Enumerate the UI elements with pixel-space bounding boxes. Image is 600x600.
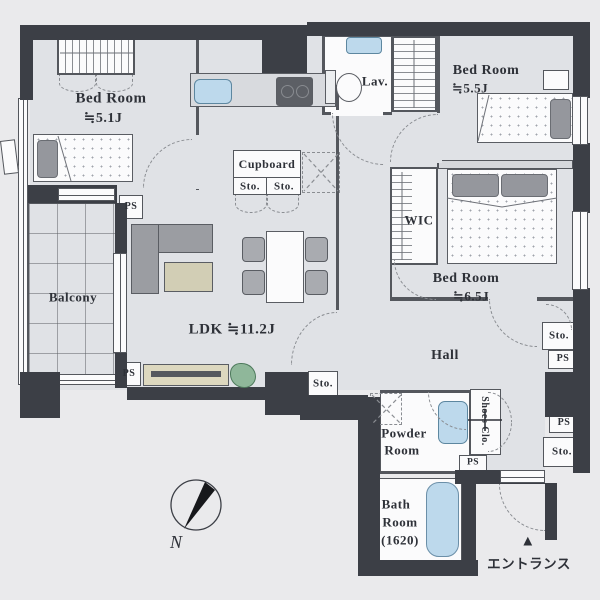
compass-north-label: N: [169, 532, 183, 552]
pillow: [452, 174, 499, 197]
wall-segment: [545, 372, 590, 417]
compass-needle: [184, 482, 215, 529]
bath-room-label-3: (1620): [381, 534, 419, 547]
bedroom-mid-size: ≒5.5J: [452, 82, 488, 95]
entrance-door-sill: [500, 470, 545, 483]
bedroom-small-size: ≒5.1J: [84, 112, 123, 126]
burner: [296, 85, 309, 98]
tv: [151, 371, 221, 377]
chair: [305, 237, 328, 262]
window-ldk-balcony: [113, 253, 127, 353]
window-shutter-mark: [0, 139, 19, 175]
wall-segment: [573, 143, 590, 213]
wall-segment: [573, 288, 590, 375]
kitchen-sink: [194, 79, 232, 104]
storage-front-mark: [267, 195, 299, 213]
chair: [242, 270, 265, 295]
pipe-space-label: PS: [467, 458, 479, 468]
storage-front-mark: [235, 195, 267, 213]
storage-label: Sto.: [552, 447, 572, 458]
toilet-tank: [325, 70, 336, 104]
wall-segment: [573, 22, 590, 98]
wall-powder-bath: [372, 471, 462, 474]
storage-xbox: [302, 152, 340, 193]
shoes-closet-label: Shoes Clo.: [479, 396, 489, 445]
door-gap: [195, 135, 202, 189]
cupboard-label: Cupboard: [239, 158, 296, 170]
wall-between-bedrooms: [438, 160, 573, 169]
burner: [281, 85, 294, 98]
compass-circle: [171, 480, 221, 530]
plant: [230, 363, 256, 388]
wall-pillar: [20, 372, 60, 418]
compass: N: [169, 480, 221, 552]
wall-segment: [127, 387, 267, 400]
wall-segment: [307, 22, 590, 36]
pipe-space-label: PS: [557, 354, 570, 364]
wic-label: WIC: [405, 214, 434, 227]
storage-label: Sto.: [549, 331, 569, 342]
chair: [242, 237, 265, 262]
wall-segment: [462, 478, 476, 566]
storage-label: Sto.: [240, 182, 260, 193]
storage-label: Sto.: [274, 182, 294, 193]
chair: [305, 270, 328, 295]
bath-room-label-1: Bath: [382, 498, 411, 511]
wall-segment: [20, 25, 263, 40]
window-bedroom-large: [572, 211, 588, 290]
floor-plan: N Bed Room ≒5.1J Bed Room ≒5.5J Bed Room…: [0, 0, 600, 600]
ldk-label: LDK ≒11.2J: [189, 323, 276, 338]
entrance-marker: ▲: [520, 535, 535, 550]
balcony-railing-left: [18, 98, 28, 385]
coffee-table: [164, 262, 213, 292]
lav-sink: [346, 37, 382, 54]
pipe-space-label: PS: [123, 369, 136, 379]
balcony-label: Balcony: [49, 291, 97, 304]
pipe-space-label: PS: [558, 418, 571, 428]
pipe-space-label: PS: [125, 202, 138, 212]
dining-table: [266, 231, 304, 303]
bedroom-large-size: ≒6.5J: [453, 290, 489, 303]
powder-room-label-2: Room: [384, 444, 419, 457]
pillow: [501, 174, 548, 197]
window-bedroom-mid: [572, 96, 588, 145]
wall-segment: [358, 397, 380, 575]
wall-segment: [545, 483, 557, 540]
cupboard-divider: [266, 178, 267, 194]
door-arc-entrance: [499, 484, 545, 531]
powder-room-label-1: Powder: [381, 427, 427, 440]
storage-label: Sto.: [313, 379, 333, 390]
nightstand: [543, 70, 569, 90]
wall-segment: [20, 25, 33, 100]
bedroom-large-name: Bed Room: [433, 272, 500, 286]
closet-front-mark: [96, 75, 133, 92]
pillow: [550, 99, 571, 139]
window-bedroom-balcony: [58, 188, 115, 201]
hall-label: Hall: [431, 349, 459, 363]
bath-room-label-2: Room: [382, 516, 417, 529]
closet-front-mark: [59, 75, 96, 92]
bedroom-small-name: Bed Room: [75, 92, 146, 107]
stove: [276, 77, 313, 106]
wall-segment: [358, 560, 478, 576]
pillow: [37, 140, 58, 178]
lav-label: Lav.: [362, 75, 388, 88]
toilet-bowl: [336, 73, 362, 102]
closet-tall: [392, 36, 437, 112]
wall-segment: [573, 417, 590, 473]
entrance-label: エントランス: [487, 558, 571, 572]
bathtub: [426, 482, 459, 557]
sofa: [131, 224, 159, 294]
bedroom-mid-name: Bed Room: [453, 64, 520, 78]
wall-wic-nook: [390, 265, 392, 300]
